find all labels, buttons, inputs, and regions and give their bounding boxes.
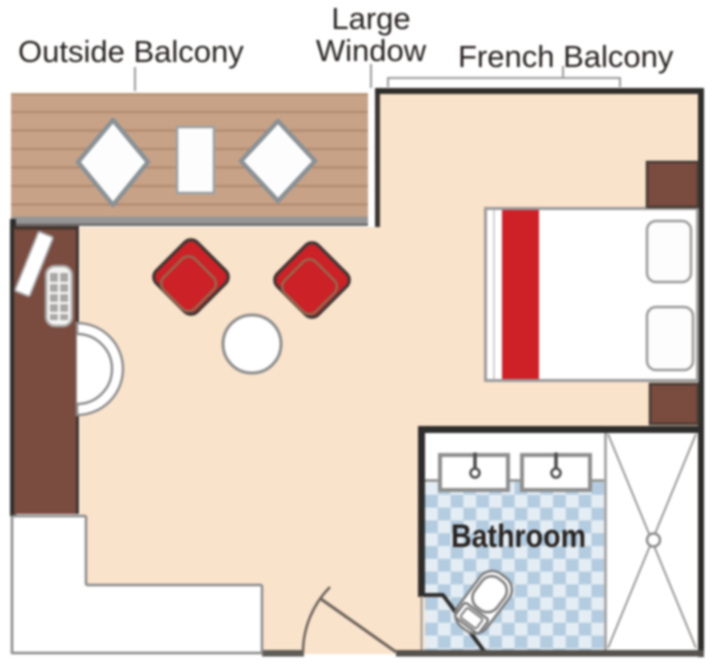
- svg-text:French Balcony: French Balcony: [458, 39, 674, 74]
- svg-text:Window: Window: [316, 33, 427, 68]
- svg-text:Bathroom: Bathroom: [451, 518, 586, 554]
- svg-text:Large: Large: [331, 1, 410, 36]
- svg-text:Outside Balcony: Outside Balcony: [18, 34, 244, 69]
